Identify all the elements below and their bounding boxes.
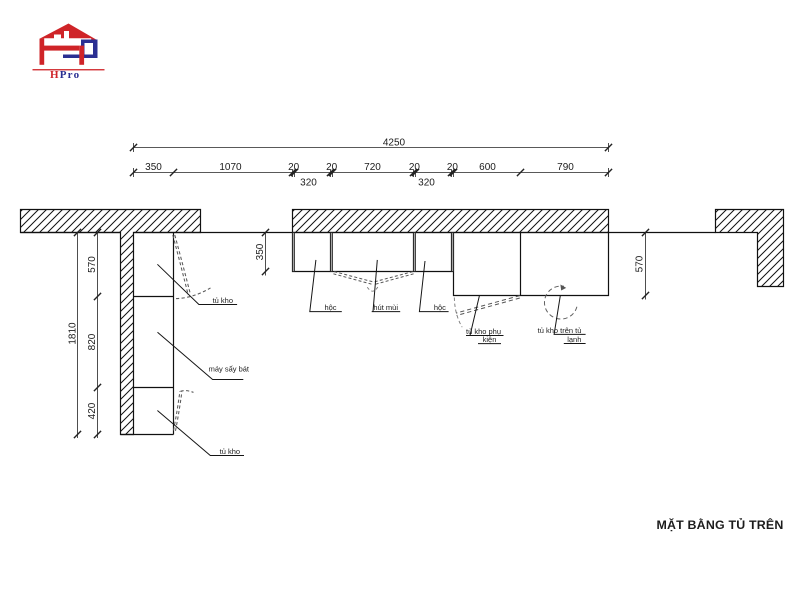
svg-text:hộc: hộc: [324, 303, 336, 312]
svg-text:720: 720: [364, 162, 381, 173]
svg-text:1810: 1810: [68, 322, 79, 345]
svg-text:20: 20: [447, 162, 459, 173]
svg-text:420: 420: [87, 402, 98, 419]
svg-text:4250: 4250: [383, 137, 406, 148]
svg-text:20: 20: [326, 162, 338, 173]
svg-text:kiện: kiện: [483, 335, 497, 344]
svg-text:tủ kho: tủ kho: [220, 447, 240, 456]
svg-text:350: 350: [255, 243, 266, 260]
svg-text:1070: 1070: [219, 162, 242, 173]
svg-text:600: 600: [479, 162, 496, 173]
svg-text:hút mùi: hút mùi: [373, 303, 398, 312]
svg-text:máy sấy bát: máy sấy bát: [209, 365, 250, 374]
svg-text:350: 350: [145, 162, 162, 173]
svg-text:320: 320: [300, 178, 317, 189]
svg-text:570: 570: [635, 255, 646, 272]
svg-text:lạnh: lạnh: [567, 335, 581, 344]
svg-text:820: 820: [87, 333, 98, 350]
svg-text:790: 790: [557, 162, 574, 173]
svg-text:tủ kho trên tủ: tủ kho trên tủ: [538, 326, 582, 335]
svg-text:tủ kho: tủ kho: [213, 296, 233, 305]
svg-text:320: 320: [418, 178, 435, 189]
svg-text:20: 20: [288, 162, 300, 173]
svg-text:HPro: HPro: [50, 69, 80, 81]
svg-text:20: 20: [409, 162, 421, 173]
svg-text:MẶT BẰNG TỦ TRÊN: MẶT BẰNG TỦ TRÊN: [656, 517, 783, 532]
svg-text:hộc: hộc: [434, 303, 446, 312]
svg-text:570: 570: [87, 256, 98, 273]
